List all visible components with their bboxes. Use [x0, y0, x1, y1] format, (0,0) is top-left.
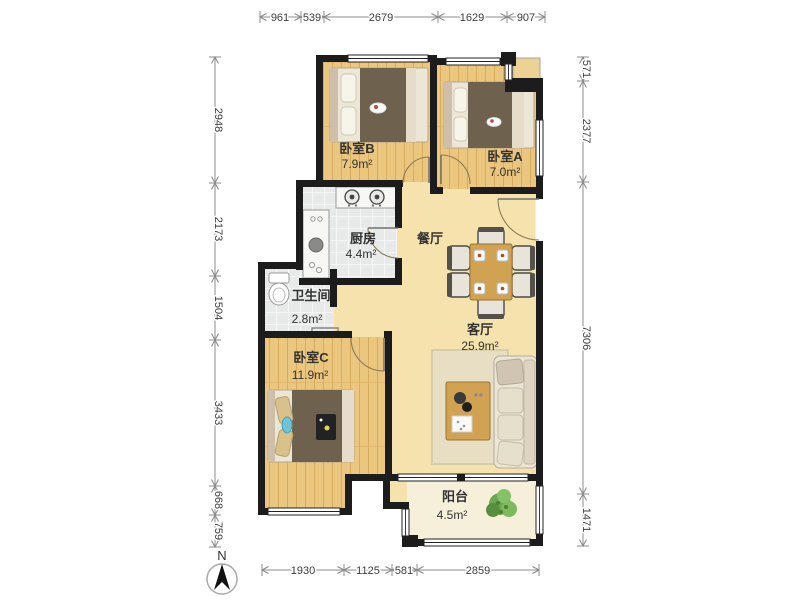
corner-window [505, 64, 512, 80]
balcony-label: 阳台 [442, 489, 468, 504]
balcony-sliding-door [398, 474, 528, 482]
bed-b-icon [330, 68, 428, 142]
dim-bottom-3: 2859 [466, 565, 490, 577]
stove-icon [336, 187, 396, 208]
bedroom-c-area: 11.9m² [292, 368, 328, 382]
dim-left-2: 1504 [212, 296, 224, 320]
bathroom-label: 卫生间 [291, 288, 330, 303]
dim-top-4: 907 [517, 12, 535, 24]
kitchen-area: 4.4m² [346, 247, 377, 261]
bathroom-area: 2.8m² [292, 312, 323, 326]
bedroom-a-label: 卧室A [487, 149, 523, 164]
dim-bottom-1: 1125 [356, 565, 380, 577]
dim-bottom-2: 581 [395, 565, 413, 577]
balcony-bottom-window [424, 539, 530, 546]
dim-left-4: 668 [212, 491, 224, 509]
coffee-table-icon [446, 382, 490, 440]
north-arrow-icon [214, 564, 230, 590]
bedroom-b-area: 7.9m² [342, 157, 373, 171]
dim-top-2: 2679 [369, 12, 393, 24]
balcony-right-window [536, 486, 543, 534]
entrance-opening [536, 199, 544, 241]
living-area: 25.9m² [461, 339, 498, 353]
toilet-icon [269, 273, 289, 305]
dim-right-1: 2377 [580, 119, 592, 143]
dim-top-3: 1629 [460, 12, 484, 24]
bedroom-a-window [446, 58, 500, 65]
kitchen-counter-icon [303, 210, 329, 278]
compass: N [207, 548, 237, 594]
dim-right-0: 571 [580, 60, 592, 78]
bedroom-a-area: 7.0m² [490, 165, 521, 179]
living-label: 客厅 [467, 322, 493, 337]
dimensions-bottom: 1930 1125 581 2859 [262, 564, 539, 577]
dim-top-1: 539 [303, 12, 321, 24]
balcony-area: 4.5m² [437, 508, 468, 522]
bedroom-c-window [268, 508, 340, 515]
north-label: N [217, 548, 226, 563]
dim-left-1: 2173 [212, 217, 224, 241]
bed-c-icon [268, 390, 354, 462]
bedroom-c-label: 卧室C [293, 350, 329, 365]
balcony-floor [407, 480, 537, 540]
balcony-left-window [402, 509, 409, 536]
floor-plan-svg: 卧室B 7.9m² 卧室A 7.0m² 厨房 4.4m² 餐厅 卫生间 2.8m… [0, 0, 800, 600]
dimensions-left: 2948 2173 1504 3433 668 759 [209, 57, 224, 547]
bedroom-b-label: 卧室B [339, 141, 374, 156]
dim-left-5: 759 [212, 522, 224, 540]
dining-label: 餐厅 [416, 231, 443, 246]
dim-top-0: 961 [271, 12, 289, 24]
sofa-icon [494, 356, 537, 468]
dim-left-3: 3433 [212, 401, 224, 425]
dim-left-0: 2948 [212, 108, 224, 132]
dimensions-top: 961 539 2679 1629 907 [260, 11, 545, 24]
kitchen-label: 厨房 [350, 231, 376, 246]
dimensions-right: 571 2377 7306 1471 [577, 57, 592, 546]
dim-right-3: 1471 [580, 508, 592, 532]
dim-bottom-0: 1930 [291, 565, 315, 577]
dim-right-2: 7306 [580, 326, 592, 350]
floor-plan-page: 卧室B 7.9m² 卧室A 7.0m² 厨房 4.4m² 餐厅 卫生间 2.8m… [0, 0, 800, 600]
bedroom-a-right-window [536, 120, 543, 176]
bedroom-b-window [348, 55, 428, 62]
